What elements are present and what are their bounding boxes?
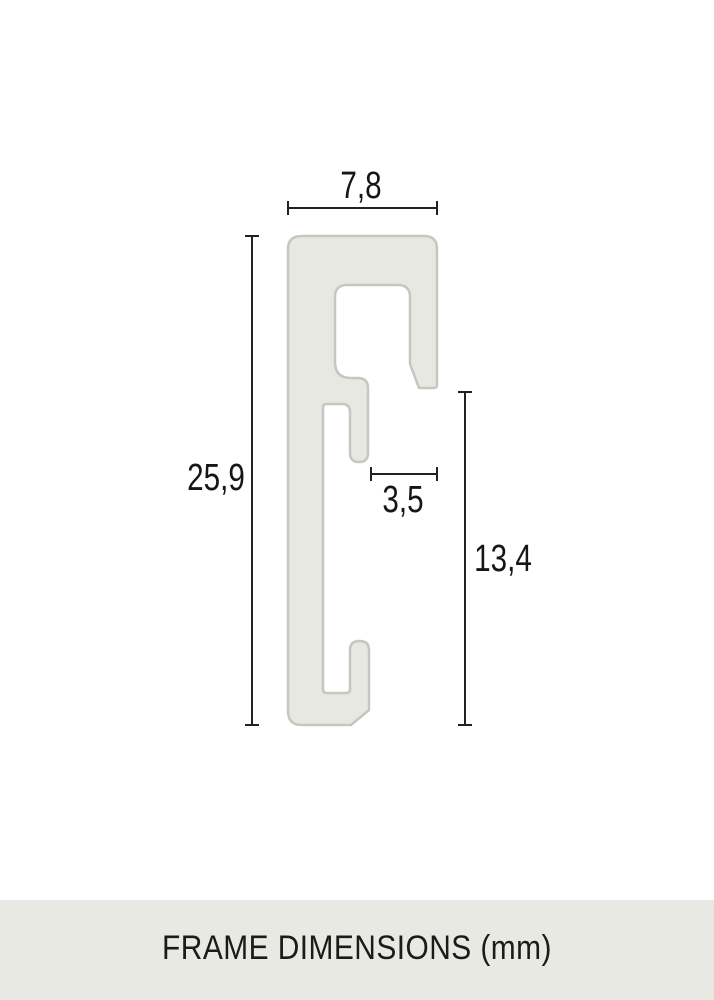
left-height-value: 25,9 bbox=[187, 459, 245, 497]
diagram-canvas: 7,8 25,9 3,5 13,4 FRAME DIMENSIONS (mm) bbox=[0, 0, 714, 1000]
top-width-value: 7,8 bbox=[340, 167, 381, 205]
right-height-value: 13,4 bbox=[474, 540, 532, 578]
inner-width-value: 3,5 bbox=[382, 481, 423, 519]
dimension-line-left-height bbox=[245, 236, 259, 725]
footer-band: FRAME DIMENSIONS (mm) bbox=[0, 900, 714, 1000]
dimension-line-right-height bbox=[458, 392, 472, 725]
frame-profile-diagram bbox=[0, 0, 714, 1000]
footer-caption: FRAME DIMENSIONS (mm) bbox=[162, 931, 552, 965]
